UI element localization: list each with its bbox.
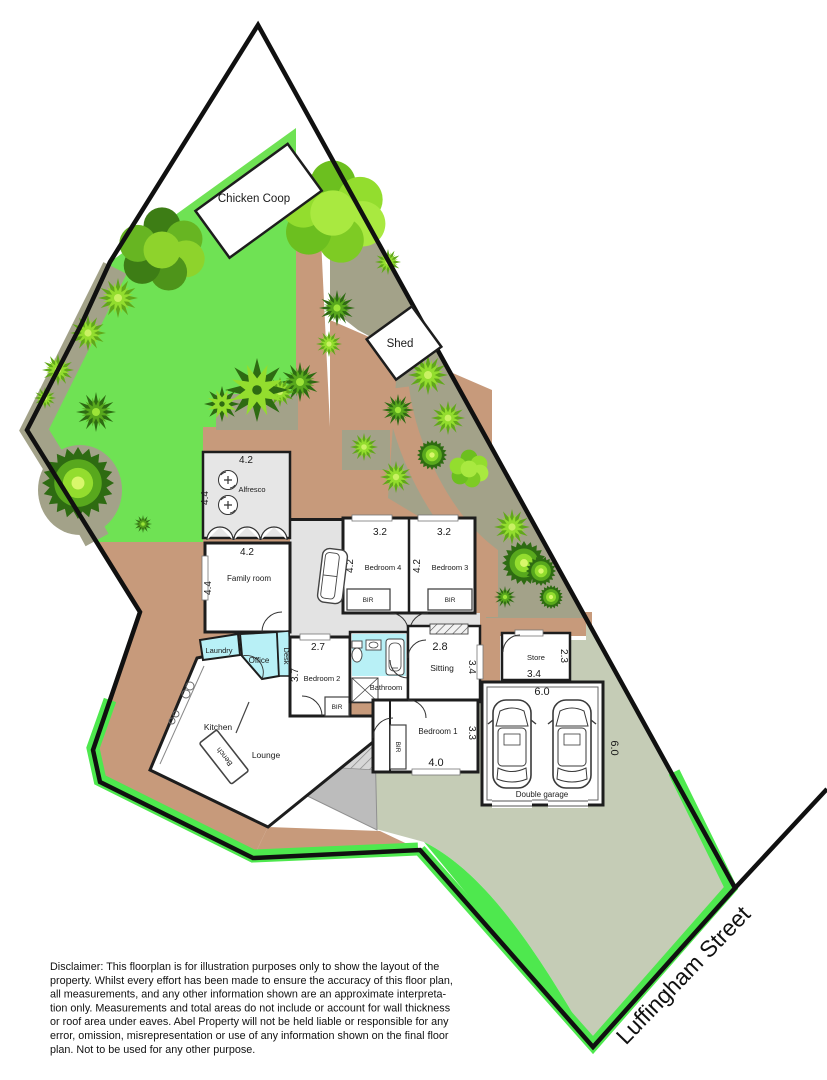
tree-icon: [141, 522, 145, 526]
ceiling-fan-icon: [219, 471, 238, 490]
room-bedroom1: BIR Bedroom 1 3.3 4.0: [373, 700, 478, 775]
dim-bed3-depth: 4.2: [412, 559, 423, 573]
room-store: Store 3.4 2.3: [502, 630, 570, 680]
room-alfresco: 4.2 4.4 Alfresco: [200, 452, 290, 540]
tree-icon: [393, 474, 399, 480]
tree-icon: [114, 294, 122, 302]
dim-bed2-width: 2.7: [311, 642, 325, 653]
room-label-lounge: Lounge: [252, 750, 281, 760]
dim-bed1-depth: 3.3: [466, 726, 477, 740]
tree-icon: [92, 408, 100, 416]
tree-icon: [508, 523, 515, 530]
tree-icon: [424, 371, 432, 379]
window: [412, 769, 460, 775]
tree-icon: [461, 461, 478, 478]
tree-icon: [144, 232, 181, 269]
tree-icon: [538, 568, 543, 573]
dim-garage-depth: 6.0: [608, 740, 620, 755]
bir-label: BIR: [332, 704, 343, 711]
window: [418, 515, 458, 521]
window: [352, 515, 392, 521]
tree-icon: [549, 595, 553, 599]
tree-icon: [429, 452, 434, 457]
room-label-bedroom2: Bedroom 2: [304, 674, 341, 683]
tree-icon: [395, 407, 401, 413]
tree-icon: [84, 329, 91, 336]
tree-icon: [219, 401, 224, 406]
dim-sitting-depth: 3.4: [466, 660, 477, 674]
dim-sitting-width: 2.8: [432, 641, 447, 653]
window: [300, 634, 330, 640]
dim-alfresco-depth: 4.4: [200, 491, 211, 505]
plant-e-icon: [225, 358, 289, 422]
room-label-sitting: Sitting: [430, 663, 454, 673]
dim-garage-width: 6.0: [534, 686, 549, 698]
dim-family-width: 4.2: [240, 547, 254, 558]
plant-e-icon: [204, 386, 240, 422]
room-label-laundry: Laundry: [205, 646, 232, 655]
bir-label: BIR: [445, 597, 456, 604]
disclaimer-text: Disclaimer: This floorplan is for illust…: [50, 961, 456, 1056]
room-bedroom2: BIR 2.7 3.7 Bedroom 2: [290, 634, 350, 716]
room-label-bedroom3: Bedroom 3: [432, 563, 469, 572]
dim-bed4-width: 3.2: [373, 527, 387, 538]
tree-icon: [252, 385, 262, 395]
bir-label: BIR: [394, 742, 401, 753]
tree-icon: [520, 559, 528, 567]
bathtub-icon: [386, 639, 404, 675]
street-line: [735, 789, 827, 888]
tree-icon: [503, 595, 507, 599]
room-bathroom: Bathroom: [350, 632, 408, 702]
disclaimer-line: property. Whilst every effort has been m…: [50, 975, 453, 987]
dim-family-depth: 4.4: [203, 581, 214, 595]
bir-label: BIR: [363, 597, 374, 604]
tree-icon: [445, 415, 452, 422]
ceiling-fan-icon: [219, 496, 238, 515]
tree-icon: [326, 341, 331, 346]
shed-label: Shed: [387, 338, 414, 350]
room-label-store: Store: [527, 653, 545, 662]
room-label-office: Office: [249, 656, 270, 665]
room-sitting: 2.8 3.4 Sitting: [408, 624, 483, 702]
disclaimer-line: error, omission, misrepresentation or us…: [50, 1030, 449, 1042]
sink-icon: [366, 640, 381, 650]
room-label-bedroom1: Bedroom 1: [418, 727, 458, 736]
toilet-icon: [352, 641, 362, 662]
tree-icon: [361, 444, 367, 450]
tree-icon: [72, 477, 85, 490]
dim-bed2-depth: 3.7: [290, 668, 301, 682]
dim-bed1-width: 4.0: [428, 757, 443, 769]
room-label-family: Family room: [227, 574, 271, 583]
garage-door: [492, 799, 532, 808]
car-icon: [548, 700, 596, 788]
disclaimer-line: all measurements, and any other informat…: [50, 989, 446, 1001]
dim-bed3-width: 3.2: [437, 527, 451, 538]
dim-store-width: 3.4: [527, 669, 541, 680]
room-label-kitchen: Kitchen: [204, 722, 233, 732]
tree-icon: [310, 190, 355, 235]
tree-icon: [333, 304, 340, 311]
room-family: 4.2 4.4 Family room: [202, 543, 290, 632]
chicken-coop-label: Chicken Coop: [218, 193, 290, 205]
room-label-garage: Double garage: [516, 790, 569, 799]
garage-door: [548, 799, 588, 808]
room-label-bathroom: Bathroom: [370, 683, 403, 692]
disclaimer-line: plan. Not to be used for any other purpo…: [50, 1044, 255, 1056]
room-garage: 6.0 6.0 Double garage: [482, 682, 620, 808]
dim-store-depth: 2.3: [558, 649, 569, 663]
disclaimer-line: tion only. Measurements and total areas …: [50, 1002, 451, 1014]
floorplan-page: 4.2 4.4 Alfresco 4.2 4.4 Family room BIR…: [0, 0, 827, 1080]
floorplan-canvas: 4.2 4.4 Alfresco 4.2 4.4 Family room BIR…: [0, 0, 827, 1080]
hatched-wall: [430, 624, 468, 634]
dim-alfresco-width: 4.2: [239, 455, 253, 466]
room-bedrooms-43: BIR BIR 3.2 3.2 4.2 4.2 Bedroom 4 Bedroo…: [343, 515, 475, 631]
car-icon: [488, 700, 536, 788]
disclaimer-line: or roof area under eaves. Abel Property …: [50, 1016, 449, 1028]
room-label-alfresco: Alfresco: [238, 485, 265, 494]
disclaimer-line: Disclaimer: This floorplan is for illust…: [50, 961, 439, 973]
tree-icon: [296, 378, 304, 386]
room-label-bedroom4: Bedroom 4: [365, 563, 402, 572]
